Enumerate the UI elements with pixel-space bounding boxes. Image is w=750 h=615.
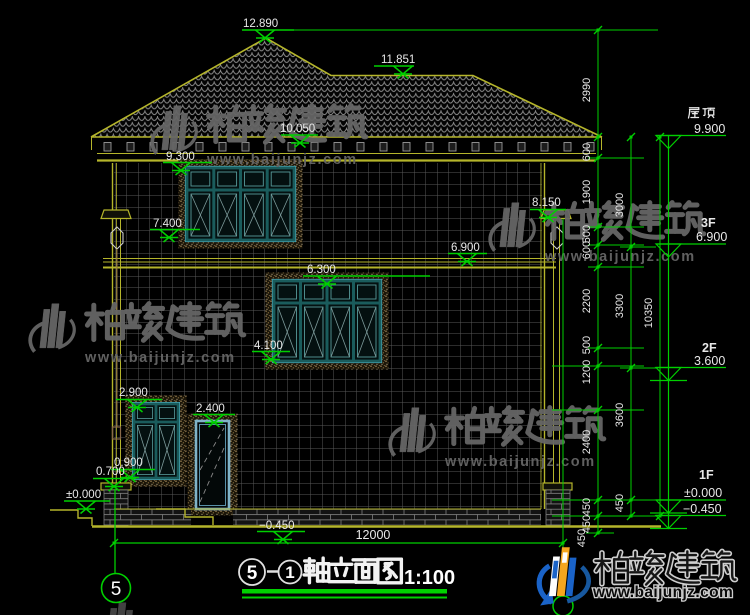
svg-text:600: 600 <box>581 143 593 161</box>
svg-text:450: 450 <box>581 498 593 516</box>
svg-text:2.900: 2.900 <box>119 387 148 399</box>
svg-text:9.300: 9.300 <box>166 151 195 163</box>
svg-text:1200: 1200 <box>581 360 593 384</box>
svg-text:9.900: 9.900 <box>694 122 725 136</box>
svg-text:www.baijunjz.com: www.baijunjz.com <box>592 584 733 601</box>
svg-text:600: 600 <box>581 241 593 259</box>
svg-text:7.400: 7.400 <box>153 218 182 230</box>
svg-text:5: 5 <box>247 563 258 584</box>
svg-text:3000: 3000 <box>614 193 626 217</box>
svg-text:3.600: 3.600 <box>694 354 725 368</box>
svg-text:6.300: 6.300 <box>307 264 336 276</box>
svg-text:4.100: 4.100 <box>254 340 283 352</box>
svg-text:±0.000: ±0.000 <box>66 489 101 501</box>
svg-text:1900: 1900 <box>581 180 593 204</box>
svg-text:2400: 2400 <box>581 430 593 454</box>
svg-text:1F: 1F <box>699 468 714 482</box>
svg-text:2990: 2990 <box>581 78 593 102</box>
svg-text:1:100: 1:100 <box>404 567 455 589</box>
svg-text:450: 450 <box>576 529 588 547</box>
svg-text:3300: 3300 <box>614 294 626 318</box>
svg-text:2200: 2200 <box>581 289 593 313</box>
svg-text:1: 1 <box>285 563 294 582</box>
svg-text:−0.450: −0.450 <box>683 502 722 516</box>
svg-text:±0.000: ±0.000 <box>684 486 722 500</box>
svg-text:3F: 3F <box>701 216 716 230</box>
svg-text:−0.450: −0.450 <box>259 520 295 532</box>
svg-text:450: 450 <box>614 494 626 512</box>
svg-text:5: 5 <box>111 579 122 600</box>
svg-text:2F: 2F <box>702 341 717 355</box>
svg-text:11.851: 11.851 <box>381 54 415 66</box>
svg-text:12000: 12000 <box>356 528 391 542</box>
svg-text:12.890: 12.890 <box>243 18 278 30</box>
svg-text:500: 500 <box>581 225 593 243</box>
svg-text:6.900: 6.900 <box>451 242 480 254</box>
svg-text:3600: 3600 <box>614 403 626 427</box>
svg-text:0.700: 0.700 <box>96 466 125 478</box>
svg-text:8.150: 8.150 <box>532 197 561 209</box>
svg-text:10350: 10350 <box>643 298 655 329</box>
svg-text:2.400: 2.400 <box>196 403 225 415</box>
svg-text:6.900: 6.900 <box>696 230 727 244</box>
svg-text:500: 500 <box>581 336 593 354</box>
svg-text:10.050: 10.050 <box>280 123 315 135</box>
